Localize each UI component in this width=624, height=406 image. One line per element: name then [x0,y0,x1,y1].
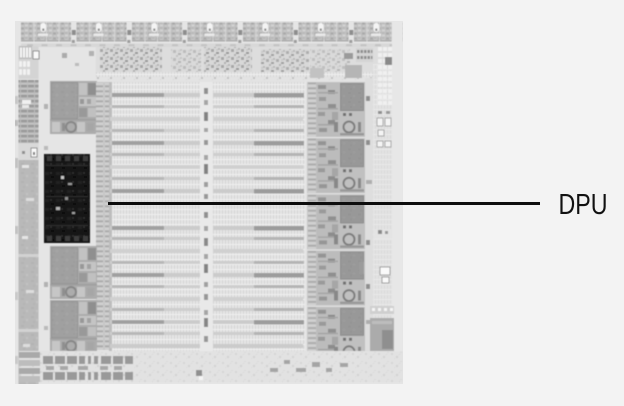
svg-text:DPU: DPU [559,189,608,221]
